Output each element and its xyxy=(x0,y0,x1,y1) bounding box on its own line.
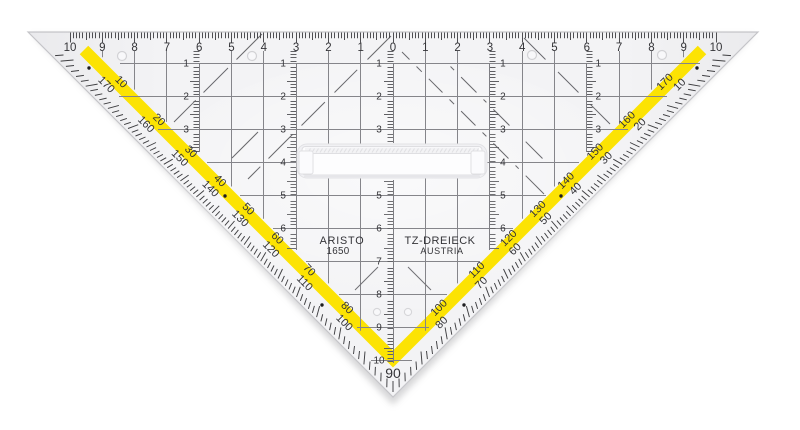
svg-text:3: 3 xyxy=(596,125,602,136)
svg-text:4: 4 xyxy=(500,158,506,169)
svg-text:2: 2 xyxy=(325,42,331,54)
svg-text:9: 9 xyxy=(99,42,105,54)
svg-text:6: 6 xyxy=(584,42,590,54)
svg-text:1: 1 xyxy=(280,59,286,70)
svg-text:7: 7 xyxy=(164,42,170,54)
svg-text:3: 3 xyxy=(487,42,493,54)
svg-text:4: 4 xyxy=(280,158,286,169)
svg-text:1650: 1650 xyxy=(327,246,350,257)
svg-text:5: 5 xyxy=(551,42,557,54)
svg-text:1: 1 xyxy=(596,59,602,70)
svg-text:8: 8 xyxy=(131,42,137,54)
svg-text:2: 2 xyxy=(376,92,382,103)
svg-text:7: 7 xyxy=(376,257,382,268)
svg-text:4: 4 xyxy=(519,42,526,54)
svg-text:2: 2 xyxy=(183,92,189,103)
svg-text:5: 5 xyxy=(228,42,234,54)
svg-text:10: 10 xyxy=(373,356,385,367)
svg-text:10: 10 xyxy=(710,42,723,54)
svg-text:9: 9 xyxy=(680,42,686,54)
svg-text:3: 3 xyxy=(183,125,189,136)
svg-text:3: 3 xyxy=(376,125,382,136)
svg-text:4: 4 xyxy=(261,42,268,54)
svg-text:2: 2 xyxy=(454,42,460,54)
svg-text:1: 1 xyxy=(422,42,428,54)
svg-text:6: 6 xyxy=(196,42,202,54)
svg-text:1: 1 xyxy=(183,59,189,70)
svg-text:6: 6 xyxy=(376,224,382,235)
svg-text:8: 8 xyxy=(648,42,654,54)
svg-text:1: 1 xyxy=(357,42,363,54)
svg-text:5: 5 xyxy=(280,191,286,202)
svg-text:1: 1 xyxy=(500,59,506,70)
svg-text:3: 3 xyxy=(500,125,506,136)
svg-text:9: 9 xyxy=(376,323,382,334)
svg-text:90: 90 xyxy=(385,365,401,381)
svg-text:7: 7 xyxy=(616,42,622,54)
svg-text:10: 10 xyxy=(64,42,77,54)
svg-text:5: 5 xyxy=(500,191,506,202)
svg-text:2: 2 xyxy=(596,92,602,103)
svg-text:1: 1 xyxy=(376,59,382,70)
svg-text:3: 3 xyxy=(280,125,286,136)
svg-text:2: 2 xyxy=(280,92,286,103)
svg-text:0: 0 xyxy=(390,42,396,54)
svg-text:5: 5 xyxy=(376,191,382,202)
svg-text:2: 2 xyxy=(500,92,506,103)
svg-text:8: 8 xyxy=(376,290,382,301)
svg-text:AUSTRIA: AUSTRIA xyxy=(420,246,463,256)
svg-text:3: 3 xyxy=(293,42,299,54)
